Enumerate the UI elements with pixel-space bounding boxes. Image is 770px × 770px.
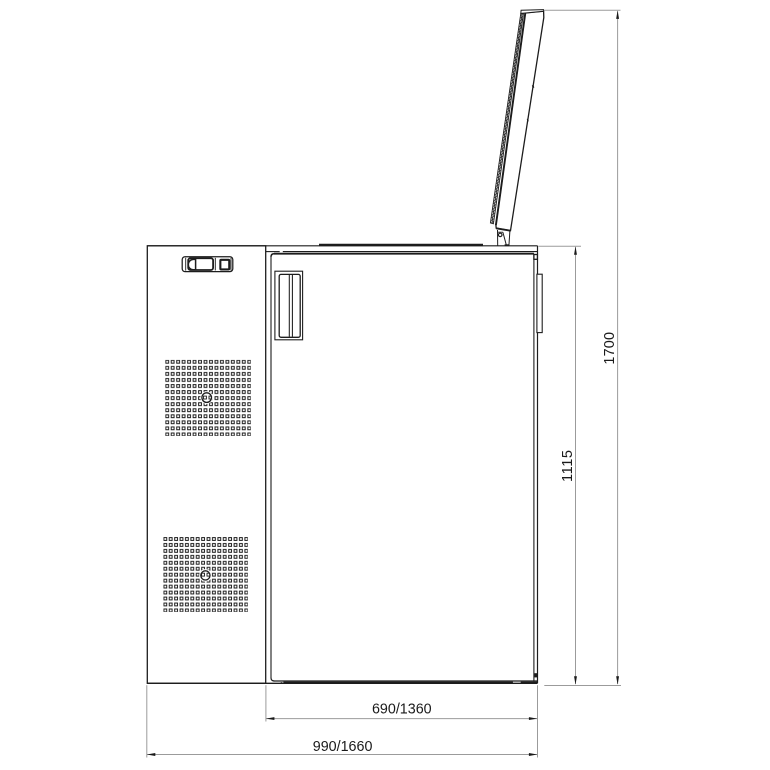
- svg-text:1115: 1115: [560, 449, 576, 482]
- svg-text:990/1660: 990/1660: [313, 739, 373, 755]
- svg-text:1700: 1700: [602, 332, 618, 365]
- svg-text:690/1360: 690/1360: [372, 702, 432, 718]
